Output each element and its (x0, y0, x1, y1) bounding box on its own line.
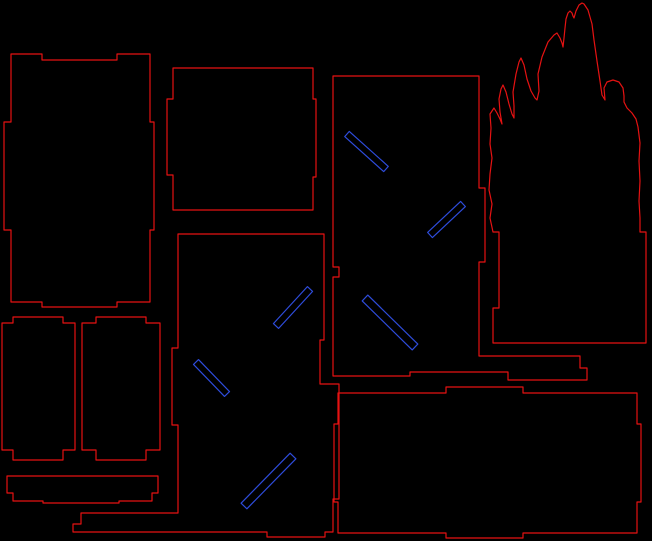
cad-canvas[interactable] (0, 0, 652, 541)
back-panel[interactable] (73, 234, 339, 537)
top-panel[interactable] (167, 68, 316, 210)
slot-back-middle[interactable] (194, 360, 230, 397)
slot-back-upper[interactable] (273, 287, 312, 329)
slot-front-middle[interactable] (428, 201, 466, 237)
slot-front-lower[interactable] (362, 295, 418, 350)
shelf-strip[interactable] (7, 476, 158, 503)
door-panel-left[interactable] (2, 317, 75, 460)
slot-front-upper[interactable] (345, 131, 389, 171)
flame-cutout[interactable] (489, 3, 646, 343)
base-panel[interactable] (334, 387, 641, 538)
cad-viewport (0, 0, 652, 541)
front-panel[interactable] (333, 76, 587, 380)
side-panel-left[interactable] (4, 54, 154, 307)
door-panel-right[interactable] (82, 317, 160, 460)
slot-back-lower[interactable] (241, 453, 296, 509)
